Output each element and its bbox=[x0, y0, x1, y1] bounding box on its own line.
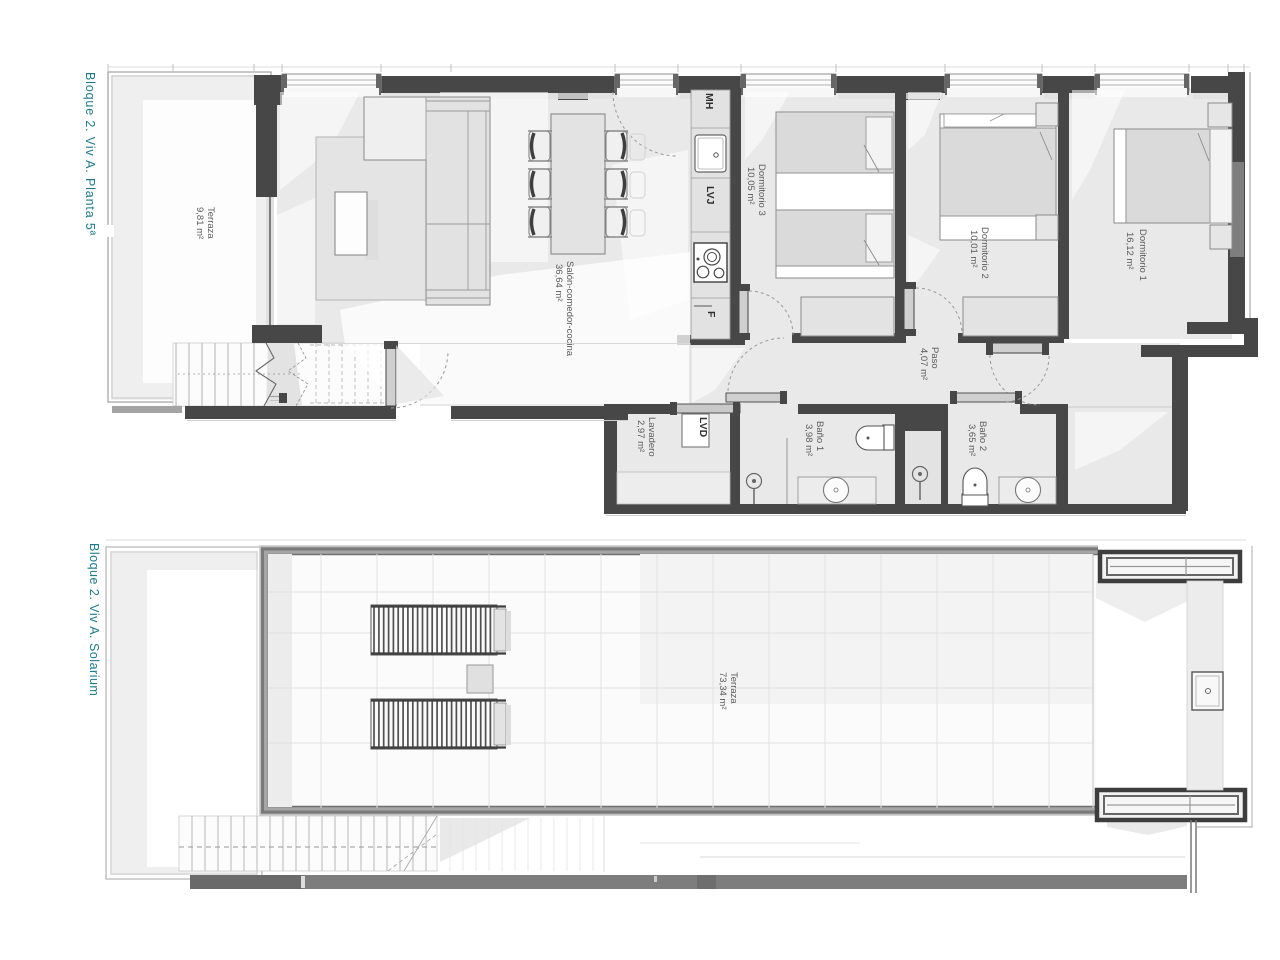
svg-text:Terraza: Terraza bbox=[205, 207, 216, 239]
svg-text:Terraza: Terraza bbox=[728, 672, 739, 704]
svg-text:3,98 m²: 3,98 m² bbox=[803, 424, 814, 456]
svg-text:Baño 1: Baño 1 bbox=[814, 421, 825, 451]
svg-text:LVD: LVD bbox=[697, 417, 709, 438]
svg-text:MH: MH bbox=[703, 93, 715, 109]
svg-text:Lavadero: Lavadero bbox=[646, 417, 657, 457]
svg-text:2,97 m²: 2,97 m² bbox=[635, 420, 646, 452]
svg-text:4,07 m²: 4,07 m² bbox=[918, 348, 929, 380]
svg-text:Dormitorio 1: Dormitorio 1 bbox=[1137, 229, 1148, 281]
svg-text:Paso: Paso bbox=[929, 347, 940, 369]
svg-text:9,81 m²: 9,81 m² bbox=[194, 207, 205, 239]
svg-text:Dormitorio 2: Dormitorio 2 bbox=[979, 227, 990, 279]
svg-text:36,64 m²: 36,64 m² bbox=[553, 264, 564, 302]
svg-text:Bloque 2. Viv A. Planta 5ª: Bloque 2. Viv A. Planta 5ª bbox=[83, 72, 97, 236]
svg-text:10,01 m²: 10,01 m² bbox=[968, 230, 979, 268]
svg-text:F: F bbox=[705, 311, 717, 318]
svg-text:16,12 m²: 16,12 m² bbox=[1124, 232, 1135, 270]
svg-text:3,65 m²: 3,65 m² bbox=[966, 424, 977, 456]
svg-text:Bloque 2. Viv A. Solarium: Bloque 2. Viv A. Solarium bbox=[87, 543, 101, 696]
svg-text:Salón-comedor-cocina: Salón-comedor-cocina bbox=[564, 261, 575, 357]
svg-text:73,34 m²: 73,34 m² bbox=[717, 672, 728, 710]
svg-text:LVJ: LVJ bbox=[704, 186, 716, 205]
svg-text:Dormitorio 3: Dormitorio 3 bbox=[756, 164, 767, 216]
svg-text:Baño 2: Baño 2 bbox=[977, 421, 988, 451]
svg-text:10,05 m²: 10,05 m² bbox=[745, 167, 756, 205]
